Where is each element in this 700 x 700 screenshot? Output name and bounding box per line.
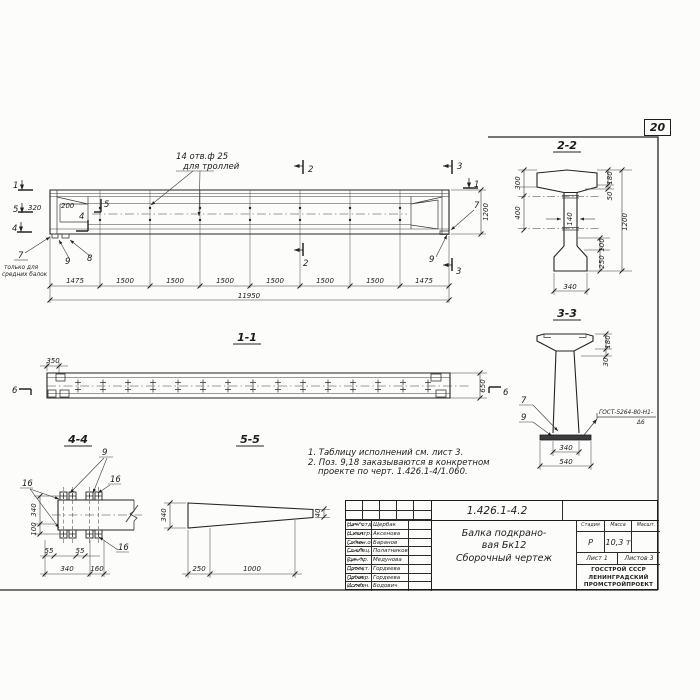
sheet-number-box: 20 <box>644 119 671 136</box>
callout: 9 <box>429 255 434 265</box>
stamp-grid: Стадия Масса Масшт. Р 10,3 т Лист 1 Лист… <box>576 521 659 591</box>
person-name: Баранов <box>372 539 409 547</box>
dim-label: 55 <box>76 547 85 555</box>
dim-label: 650 <box>479 379 487 393</box>
drawing-title: Балка подкрано- вая Бк12 Сборочный черте… <box>431 521 576 591</box>
drawing-canvas: 1 5 4 14 отв.ф 25 для троллей 320 200 5 … <box>0 0 700 700</box>
section-2-2 <box>518 152 632 295</box>
dim-label: 300 <box>514 176 522 190</box>
dim-label: 160 <box>90 565 104 573</box>
callout: 8 <box>87 254 93 264</box>
dim-label: 30 <box>602 357 610 366</box>
title-block: Нач. отд Щербак Н.контр. Аксенова Гл.кон… <box>345 500 658 590</box>
signature-scribble <box>409 521 431 529</box>
cut-label: 1 <box>13 181 18 191</box>
dim-label: 55 <box>45 547 54 555</box>
section-title: 3-3 <box>557 307 577 320</box>
dim-label: 340 <box>30 503 38 517</box>
signature-row: Исполн. Бодович <box>346 582 431 591</box>
sheets-label: Листов 3 <box>618 553 660 565</box>
dim-label: 340 <box>563 283 577 291</box>
callout-note: только для <box>4 265 39 271</box>
signature-row: Гл.кон.отд Баранов <box>346 539 431 548</box>
mass-value: 10,3 т <box>605 532 632 553</box>
holes-note: 14 отв.ф 25 <box>176 152 228 162</box>
callout: 7 <box>521 396 527 406</box>
doc-number: 1.426.1-4.2 <box>431 501 562 521</box>
organization-line: ЛЕНИНГРАДСКИЙ <box>577 575 660 583</box>
signature-scribble <box>409 530 431 538</box>
drawing-title-line: Балка подкрано- <box>432 528 576 540</box>
callout: 16 <box>118 543 129 553</box>
sheet-label: Лист 1 <box>577 553 618 565</box>
dim-label: 100 <box>30 522 38 536</box>
organization-line: ГОССТРОЙ СССР <box>577 567 660 575</box>
section-title: 2-2 <box>557 139 577 152</box>
dim-label: 540 <box>559 458 573 466</box>
note-line: 1. Таблицу исполнений см. лист 3. <box>308 448 463 458</box>
stage-value: Р <box>577 532 605 553</box>
dim-label: 100 <box>598 238 606 252</box>
callout: 9 <box>65 257 70 267</box>
cut-label: 4 <box>79 212 84 222</box>
dim-label: 1475 <box>66 277 84 285</box>
signature-row: Нач. отд Щербак <box>346 521 431 530</box>
dim-label: 1475 <box>415 277 433 285</box>
signature-scribble <box>409 582 431 591</box>
dim-label: 320 <box>28 204 42 212</box>
dim-label: 1200 <box>621 213 629 231</box>
section-title: 1-1 <box>237 331 257 344</box>
weld-note: Δ6 <box>636 420 645 426</box>
revision-row <box>346 501 431 511</box>
dim-label: 200 <box>61 202 75 210</box>
cut-label: 5 <box>104 200 109 210</box>
signature-row: Гл.спец.отд Полатников <box>346 547 431 556</box>
sheet-number: 20 <box>650 121 665 134</box>
section-1-1 <box>19 344 501 401</box>
cut-label: 6 <box>503 388 509 398</box>
dim-label: 1200 <box>482 203 490 221</box>
section-title: 4-4 <box>67 433 88 446</box>
callout: 16 <box>22 479 33 489</box>
dim-label: 340 <box>160 508 168 522</box>
dim-label: 340 <box>60 565 74 573</box>
dim-label: 1500 <box>316 277 334 285</box>
cut-label: 4 <box>12 224 17 234</box>
dim-label: 1500 <box>266 277 284 285</box>
elevation-dimensions <box>48 188 487 304</box>
drawing-title-line: Сборочный чертеж <box>432 553 576 565</box>
callout: 9 <box>102 448 107 458</box>
callout-note: средних балок <box>2 272 48 278</box>
callout: 16 <box>110 475 121 485</box>
section-3-3 <box>519 320 656 470</box>
dim-label: 40 <box>314 508 322 517</box>
person-name: Гордеева <box>372 574 409 582</box>
doc-code <box>562 501 659 521</box>
signature-scribble <box>409 565 431 573</box>
signature-scribble <box>409 556 431 564</box>
revision-row <box>346 511 431 521</box>
cut-label: 5 <box>13 205 18 215</box>
person-name: Полатников <box>372 547 409 555</box>
dim-label: 1500 <box>166 277 184 285</box>
holes-note: для троллей <box>182 162 240 172</box>
drawing-sheet: 1 5 4 14 отв.ф 25 для троллей 320 200 5 … <box>0 0 700 700</box>
dim-label: 1000 <box>243 565 261 573</box>
note-line: проекте по черт. 1.426.1-4/1.060. <box>318 467 468 477</box>
organization-line: ПРОМСТРОЙПРОЕКТ <box>577 582 660 590</box>
cut-label: 2 <box>303 259 308 269</box>
cut-label: 2 <box>308 165 313 175</box>
dim-label: 140 <box>566 212 574 226</box>
section-4-4 <box>20 446 142 577</box>
signature-row: Проект. Гордеева <box>346 565 431 574</box>
stage-header: Стадия <box>577 521 605 532</box>
cut-label: 3 <box>457 162 462 172</box>
dim-label: 250 <box>598 255 606 269</box>
callout: 9 <box>521 413 526 423</box>
signature-row: Рук. гр. Медунова <box>346 556 431 565</box>
dim-label: 180 <box>604 335 612 349</box>
cut-label: 6 <box>12 386 18 396</box>
signature-scribble <box>409 547 431 555</box>
dim-label: 11950 <box>238 292 261 300</box>
dim-label: 1500 <box>216 277 234 285</box>
dim-label: 50 <box>606 191 614 200</box>
person-name: Бодович <box>372 582 409 591</box>
callout: 7 <box>18 251 24 261</box>
signature-row: Н.контр. Аксенова <box>346 530 431 539</box>
person-name: Гордеева <box>372 565 409 573</box>
dim-label: 400 <box>514 206 522 220</box>
cut-label: 3 <box>456 267 461 277</box>
dim-label: 1500 <box>366 277 384 285</box>
dim-label: 250 <box>192 565 206 573</box>
callout: 7 <box>474 201 480 211</box>
cut-label: 1 <box>474 180 479 190</box>
person-name: Медунова <box>372 556 409 564</box>
dim-label: 340 <box>559 444 573 452</box>
person-name: Щербак <box>372 521 409 529</box>
mass-header: Масса <box>605 521 632 532</box>
signature-row: Провер. Гордеева <box>346 574 431 583</box>
weld-note: ГОСТ-5264-80-Н1- <box>599 410 653 416</box>
scale-value <box>632 532 660 553</box>
drawing-title-line: вая Бк12 <box>432 540 576 552</box>
section-5-5 <box>164 446 330 578</box>
dim-label: 350 <box>46 357 60 365</box>
signature-scribble <box>409 539 431 547</box>
dim-label: 180 <box>606 171 614 185</box>
section-title: 5-5 <box>240 433 260 446</box>
signature-scribble <box>409 574 431 582</box>
dim-label: 1500 <box>116 277 134 285</box>
person-name: Аксенова <box>372 530 409 538</box>
scale-header: Масшт. <box>632 521 660 532</box>
organization: ГОССТРОЙ СССР ЛЕНИНГРАДСКИЙ ПРОМСТРОЙПРО… <box>577 565 660 591</box>
